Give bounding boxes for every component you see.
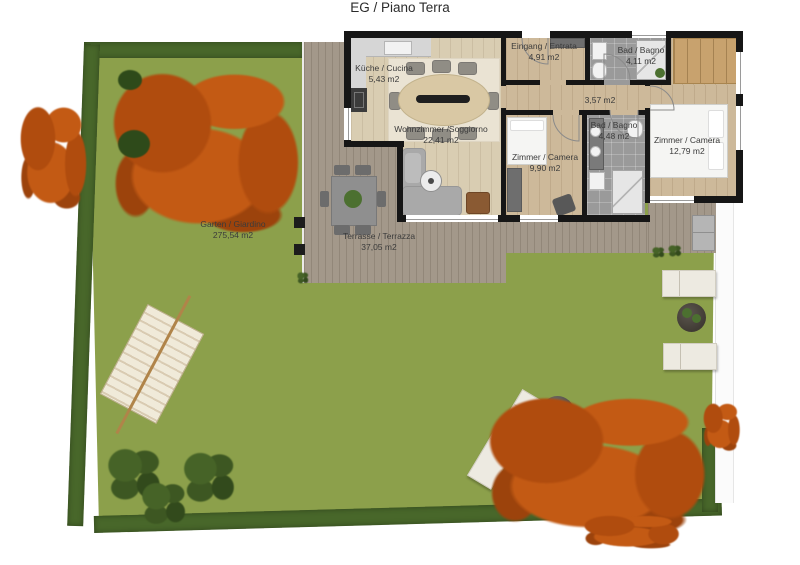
door-gap (645, 86, 650, 108)
window-kitchen (344, 108, 351, 140)
evergreen-accent (118, 70, 142, 90)
dresser (507, 168, 522, 212)
window-right-upper (736, 52, 743, 94)
door-gap (553, 110, 579, 115)
wood-stool (466, 192, 490, 214)
entry-door-gap (522, 31, 550, 38)
outdoor-chair (355, 165, 371, 175)
floor-plan-title: EG / Piano Terra (0, 0, 800, 15)
window-bedroom-large (650, 196, 694, 203)
toilet (592, 62, 607, 79)
outdoor-chair (334, 165, 350, 175)
room-label-garden: Garten / Giardino275,54 m2 (200, 219, 265, 241)
window-right-lower (736, 106, 743, 150)
room-hallway-floor (506, 85, 645, 110)
deck-light (294, 244, 305, 255)
storage-box (692, 215, 715, 251)
kitchen-tall-unit (351, 88, 367, 112)
deck-corner-bush (296, 271, 310, 285)
autumn-scatter (700, 398, 744, 456)
sun-lounger (662, 270, 716, 297)
door-gap (540, 80, 566, 85)
outdoor-chair (377, 191, 386, 207)
wall-bedroom-bath (582, 110, 587, 222)
coffee-table (420, 170, 442, 192)
door-gap (604, 80, 630, 85)
pillow (510, 120, 544, 131)
sofa-cushion (405, 153, 421, 183)
shower (612, 170, 643, 214)
garden-bush (178, 447, 242, 509)
room-label-bedroom-large: Zimmer / Camera12,79 m2 (654, 135, 720, 157)
planter-plant (692, 314, 701, 323)
bath-sink (590, 146, 601, 157)
room-label-kitchen: Küche / Cucina5,43 m2 (355, 63, 413, 85)
planter-plant (682, 308, 692, 318)
deck-bush (651, 246, 666, 259)
outdoor-chair (320, 191, 329, 207)
autumn-tree-left-edge (14, 95, 94, 220)
room-label-entrance: Eingang / Entrata4,91 m2 (511, 41, 577, 63)
bath-sink (592, 42, 607, 60)
deck-below-living (402, 222, 506, 283)
sun-lounger (663, 343, 717, 370)
room-label-bath-mid: Bad / Bagno4,48 m2 (591, 120, 638, 142)
window-bath-top (632, 31, 666, 38)
pillow (708, 110, 724, 138)
door-gap (610, 110, 638, 115)
kitchen-sink (384, 41, 412, 55)
floor-plan: EG / Piano Terra (0, 0, 800, 565)
room-label-bedroom-small: Zimmer / Camera9,90 m2 (512, 152, 578, 174)
window-living-slider (406, 215, 498, 222)
outdoor-plant (344, 190, 362, 208)
wall-entrance-bath (585, 38, 590, 82)
window-bedroom-small (520, 215, 558, 222)
potted-plant (655, 68, 665, 78)
washing-machine (589, 172, 605, 190)
wardrobe (673, 38, 738, 84)
wall-bath-top-right (666, 38, 671, 85)
deck-bush (667, 244, 683, 258)
wall-living-left (397, 141, 403, 222)
room-label-hallway: 3,57 m2 (585, 95, 616, 106)
dining-chair (458, 62, 477, 75)
wall-living-divider (501, 38, 506, 222)
table-runner (416, 95, 470, 103)
dining-chair (432, 60, 451, 73)
room-label-terrace: Terrasse / Terrazza37,05 m2 (343, 231, 415, 253)
evergreen-accent (118, 130, 150, 158)
room-label-bath-top: Bad / Bagno4,11 m2 (618, 45, 665, 67)
room-label-living: Wohnzimmer /Soggiorno22,41 m2 (394, 124, 487, 146)
door-gap (501, 86, 506, 108)
deck-below-bedrooms (506, 222, 648, 253)
autumn-scatter (575, 512, 690, 552)
